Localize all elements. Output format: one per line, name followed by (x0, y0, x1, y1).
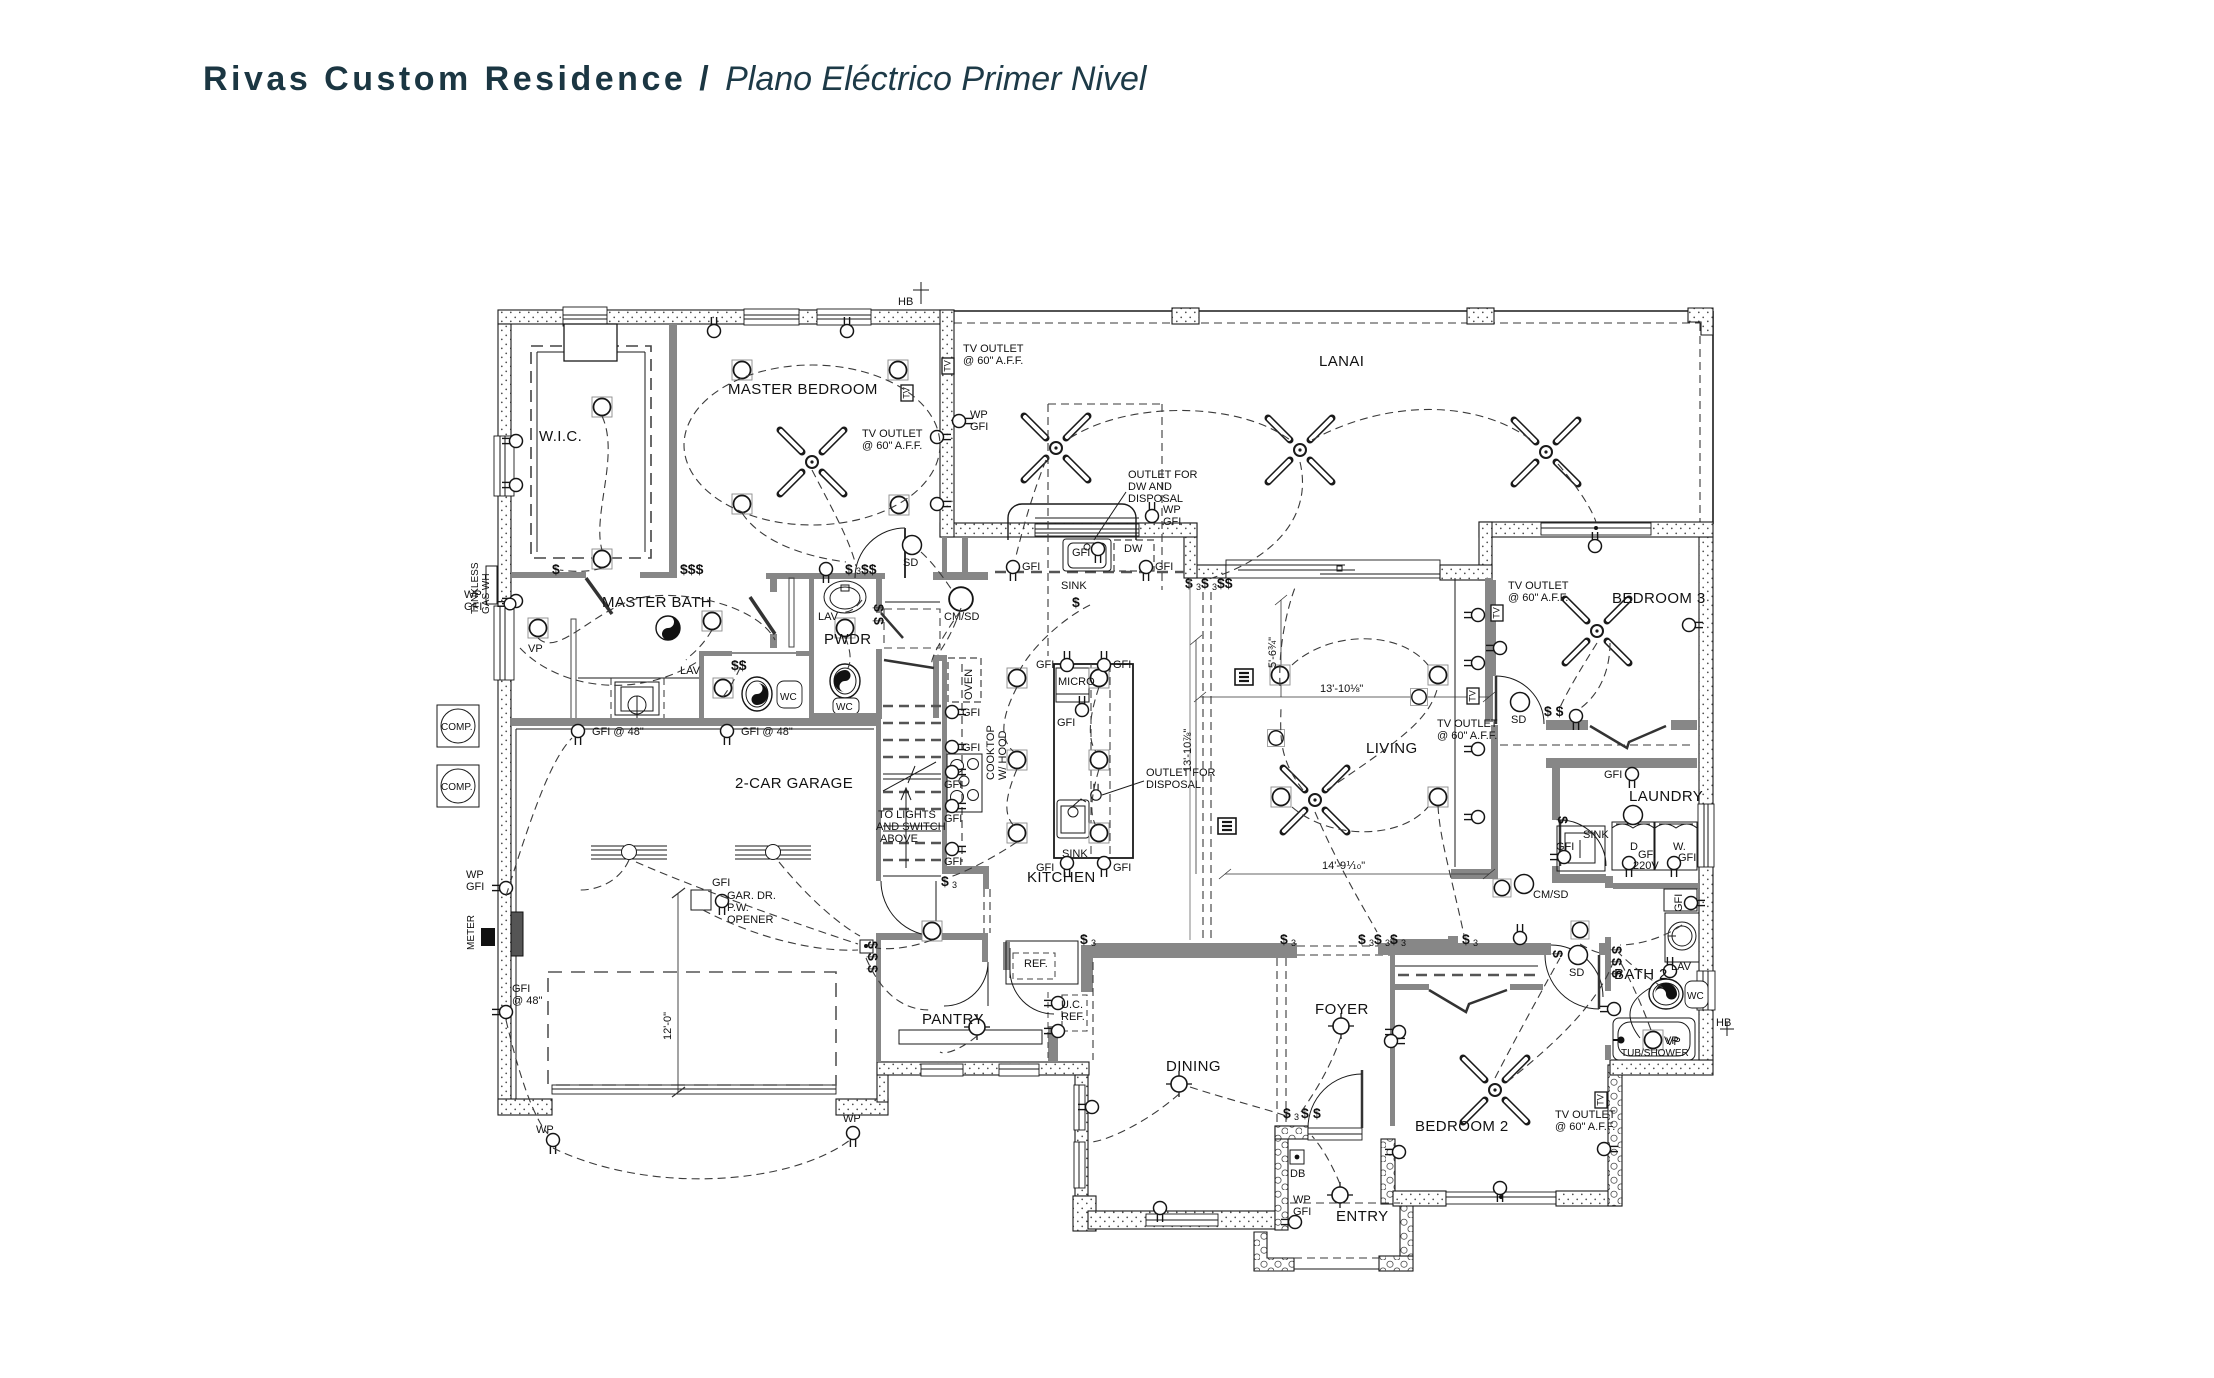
svg-text:OVEN: OVEN (963, 669, 975, 700)
svg-text:$: $ (1550, 950, 1566, 958)
svg-text:SD: SD (1511, 714, 1526, 726)
svg-text:$: $ (941, 873, 949, 889)
svg-text:GFI: GFI (466, 881, 484, 893)
svg-text:$: $ (552, 561, 560, 577)
svg-text:REF.: REF. (1024, 958, 1048, 970)
svg-text:@ 60" A.F.F.: @ 60" A.F.F. (963, 355, 1023, 367)
svg-text:ABOVE: ABOVE (880, 833, 918, 845)
svg-text:GFI: GFI (464, 601, 482, 613)
svg-text:LIVING: LIVING (1366, 740, 1418, 757)
svg-text:W.I.C.: W.I.C. (539, 428, 582, 445)
svg-text:$: $ (1609, 958, 1625, 966)
svg-text:$: $ (1301, 1105, 1309, 1121)
svg-text:GFI: GFI (1155, 561, 1173, 573)
svg-text:HB: HB (1716, 1017, 1731, 1029)
svg-text:GFI: GFI (944, 856, 962, 868)
svg-text:U.C.: U.C. (1061, 999, 1083, 1011)
svg-text:DW AND: DW AND (1128, 481, 1172, 493)
svg-text:W/ HOOD: W/ HOOD (997, 730, 1009, 780)
svg-text:SD: SD (903, 557, 918, 569)
svg-text:14'-9⅒": 14'-9⅒" (1322, 860, 1365, 872)
svg-text:@ 48": @ 48" (512, 995, 542, 1007)
svg-text:GFI: GFI (1113, 659, 1131, 671)
svg-text:$: $ (871, 617, 887, 625)
svg-text:2-CAR GARAGE: 2-CAR GARAGE (735, 775, 853, 792)
svg-text:$: $ (1080, 931, 1088, 947)
svg-text:METER: METER (466, 915, 477, 950)
svg-text:DISPOSAL: DISPOSAL (1128, 493, 1183, 505)
svg-text:BATH 2: BATH 2 (1614, 966, 1668, 983)
svg-text:GFI: GFI (1678, 852, 1696, 864)
svg-text:3: 3 (1401, 938, 1406, 948)
svg-text:@ 60" A.F.F.: @ 60" A.F.F. (862, 440, 922, 452)
svg-text:GFI: GFI (1072, 547, 1090, 559)
svg-text:WC: WC (836, 702, 853, 713)
svg-text:DISPOSAL: DISPOSAL (1146, 779, 1201, 791)
svg-text:$$: $$ (861, 561, 877, 577)
svg-text:$: $ (1374, 931, 1382, 947)
svg-text:$: $ (1313, 1105, 1321, 1121)
svg-text:GFI @ 48": GFI @ 48" (592, 726, 644, 738)
svg-text:WP: WP (843, 1113, 861, 1125)
svg-text:$: $ (871, 604, 887, 612)
svg-text:REF.: REF. (1061, 1011, 1085, 1023)
svg-text:PANTRY: PANTRY (922, 1011, 984, 1028)
svg-text:SINK: SINK (1583, 829, 1609, 841)
svg-text:@ 60" A.F.F.: @ 60" A.F.F. (1555, 1121, 1615, 1133)
svg-text:$: $ (1072, 594, 1080, 610)
svg-text:$: $ (1283, 1105, 1291, 1121)
svg-text:TV OUTLET: TV OUTLET (963, 343, 1024, 355)
svg-text:GFI: GFI (970, 421, 988, 433)
svg-text:LAV: LAV (680, 665, 701, 677)
svg-text:HB: HB (898, 296, 913, 308)
svg-text:GFI: GFI (1022, 561, 1040, 573)
svg-text:GFI: GFI (512, 983, 530, 995)
svg-text:$$: $$ (1217, 575, 1233, 591)
svg-text:GFI: GFI (1604, 769, 1622, 781)
svg-text:DINING: DINING (1166, 1058, 1221, 1075)
svg-text:$: $ (1609, 946, 1625, 954)
svg-text:3: 3 (952, 880, 957, 890)
svg-text:GFI: GFI (1163, 516, 1181, 528)
svg-text:D: D (1630, 841, 1638, 853)
svg-text:$: $ (1390, 931, 1398, 947)
svg-text:FOYER: FOYER (1315, 1001, 1369, 1018)
svg-text:$: $ (1358, 931, 1366, 947)
svg-text:SINK: SINK (1062, 848, 1088, 860)
svg-text:LAV: LAV (818, 611, 839, 623)
svg-text:WP: WP (970, 409, 988, 421)
svg-text:MASTER BEDROOM: MASTER BEDROOM (728, 381, 878, 398)
svg-text:TUB/SHOWER: TUB/SHOWER (1621, 1048, 1689, 1059)
svg-text:CM/SD: CM/SD (944, 611, 980, 623)
svg-text:KITCHEN: KITCHEN (1027, 869, 1096, 886)
svg-text:COMP.: COMP. (441, 722, 473, 733)
svg-text:$: $ (1280, 931, 1288, 947)
svg-text:13'-10⅞": 13'-10⅞" (1182, 729, 1194, 772)
svg-text:$$$: $$$ (680, 561, 704, 577)
svg-text:GFI: GFI (1036, 659, 1054, 671)
svg-text:220V: 220V (1633, 860, 1659, 872)
svg-text:LAV: LAV (1671, 961, 1692, 973)
svg-text:WP: WP (466, 869, 484, 881)
svg-text:SINK: SINK (1061, 580, 1087, 592)
svg-text:WC: WC (1687, 991, 1704, 1002)
svg-text:GFI: GFI (962, 707, 980, 719)
svg-text:GAS WH: GAS WH (481, 573, 492, 614)
svg-text:@ 60" A.F.F.: @ 60" A.F.F. (1437, 730, 1497, 742)
svg-text:ENTRY: ENTRY (1336, 1208, 1389, 1225)
svg-text:LANAI: LANAI (1319, 353, 1364, 370)
svg-text:BEDROOM 2: BEDROOM 2 (1415, 1118, 1509, 1135)
svg-text:GFI: GFI (1057, 717, 1075, 729)
svg-text:COMP.: COMP. (441, 782, 473, 793)
svg-text:MICRO: MICRO (1058, 676, 1095, 688)
svg-text:13'-10⅛": 13'-10⅛" (1320, 683, 1363, 695)
svg-text:PWDR: PWDR (824, 631, 871, 648)
svg-text:GFI: GFI (1293, 1206, 1311, 1218)
svg-text:WC: WC (780, 692, 797, 703)
svg-text:GFI: GFI (1556, 841, 1574, 853)
svg-text:GFI: GFI (712, 877, 730, 889)
svg-text:$: $ (845, 561, 853, 577)
svg-text:3: 3 (1294, 1112, 1299, 1122)
svg-text:VP: VP (528, 643, 543, 655)
svg-text:$: $ (1555, 816, 1571, 824)
svg-text:GFI: GFI (962, 742, 980, 754)
svg-text:GFI: GFI (1113, 862, 1131, 874)
svg-text:$: $ (1201, 575, 1209, 591)
svg-text:OUTLET FOR: OUTLET FOR (1128, 469, 1198, 481)
svg-text:12'-0": 12'-0" (662, 1012, 674, 1040)
svg-text:OPENER: OPENER (727, 914, 774, 926)
svg-text:$: $ (1185, 575, 1193, 591)
svg-text:SD: SD (1569, 967, 1584, 979)
svg-text:GFI: GFI (1673, 894, 1685, 912)
svg-text:WP: WP (1293, 1194, 1311, 1206)
svg-text:VP: VP (1664, 1035, 1679, 1047)
svg-text:@ 60" A.F.F.: @ 60" A.F.F. (1508, 592, 1568, 604)
svg-text:3: 3 (1091, 938, 1096, 948)
svg-text:TO LIGHTS: TO LIGHTS (878, 809, 936, 821)
svg-text:CM/SD: CM/SD (1533, 889, 1569, 901)
svg-text:LAUNDRY: LAUNDRY (1629, 788, 1703, 805)
svg-text:WP: WP (1163, 504, 1181, 516)
svg-text:WP: WP (464, 589, 482, 601)
svg-text:P.W.: P.W. (727, 902, 749, 914)
svg-text:AND SWITCH: AND SWITCH (876, 821, 946, 833)
svg-text:TV OUTLET: TV OUTLET (862, 428, 923, 440)
svg-text:3: 3 (1473, 938, 1478, 948)
svg-text:TV OUTLET: TV OUTLET (1508, 580, 1569, 592)
svg-text:OUTLET FOR: OUTLET FOR (1146, 767, 1216, 779)
svg-text:DB: DB (1290, 1168, 1305, 1180)
svg-text:3: 3 (1291, 938, 1296, 948)
svg-text:MASTER BATH: MASTER BATH (602, 594, 712, 611)
svg-text:TV OUTLET: TV OUTLET (1555, 1109, 1616, 1121)
svg-text:GFI: GFI (944, 813, 962, 825)
svg-text:5'-6¾": 5'-6¾" (1267, 637, 1279, 668)
svg-text:DW: DW (1124, 543, 1143, 555)
svg-text:BEDROOM 3: BEDROOM 3 (1612, 590, 1706, 607)
svg-text:GAR. DR.: GAR. DR. (727, 890, 776, 902)
svg-text:GFI @ 48": GFI @ 48" (741, 726, 793, 738)
svg-text:COOKTOP: COOKTOP (985, 725, 997, 780)
svg-text:TV OUTLET: TV OUTLET (1437, 718, 1498, 730)
svg-text:GFI: GFI (944, 779, 962, 791)
